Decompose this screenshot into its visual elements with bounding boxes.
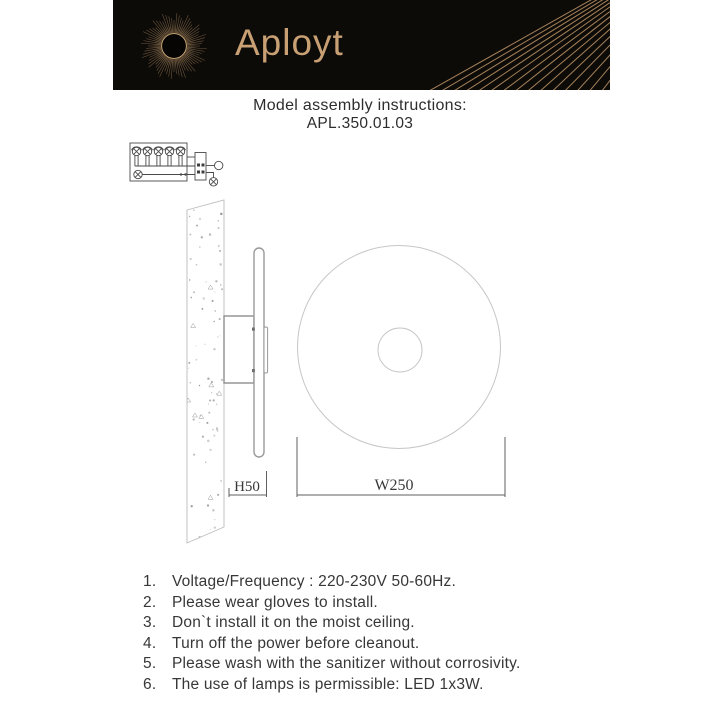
instruction-item: 3. Don`t install it on the moist ceiling… [143, 614, 520, 635]
item-number: 5. [143, 655, 172, 673]
item-text: Voltage/Frequency : 220-230V 50-60Hz. [172, 573, 456, 591]
lamp-symbol [134, 170, 142, 178]
item-number: 3. [143, 614, 172, 632]
item-number: 2. [143, 594, 172, 612]
front-view [298, 246, 501, 449]
item-number: 1. [143, 573, 172, 591]
connector-piece [264, 327, 268, 373]
document-title: Model assembly instructions: APL.350.01.… [0, 96, 720, 133]
item-number: 6. [143, 676, 172, 694]
wiring-diagram [130, 143, 223, 186]
title-line: Model assembly instructions: [0, 96, 720, 115]
instruction-list: 1. Voltage/Frequency : 220-230V 50-60Hz.… [143, 573, 520, 697]
instruction-item: 4. Turn off the power before cleanout. [143, 635, 520, 656]
mounting-box [224, 316, 254, 383]
instruction-item: 6. The use of lamps is permissible: LED … [143, 676, 520, 697]
dimension-height-label: H50 [234, 479, 260, 495]
brand-banner: Aployt [113, 0, 610, 90]
instruction-item: 5. Please wash with the sanitizer withou… [143, 655, 520, 676]
dimension-lines [229, 437, 505, 497]
lamp-center-circle [378, 328, 422, 372]
item-text: The use of lamps is permissible: LED 1x3… [172, 676, 484, 694]
ceiling-panel [187, 200, 224, 543]
instruction-item: 1. Voltage/Frequency : 220-230V 50-60Hz. [143, 573, 520, 594]
item-number: 4. [143, 635, 172, 653]
model-number: APL.350.01.03 [0, 115, 720, 133]
item-text: Please wash with the sanitizer without c… [172, 655, 520, 673]
item-text: Turn off the power before cleanout. [172, 635, 419, 653]
item-text: Don`t install it on the moist ceiling. [172, 614, 415, 632]
brand-name: Aployt [235, 21, 344, 65]
lamp-disc-outline [298, 246, 501, 449]
lamp-profile [254, 248, 264, 457]
starburst-logo-icon [132, 4, 216, 88]
instruction-sheet: H50 W250 Aployt Model assembly instructi… [0, 0, 720, 720]
instruction-item: 2. Please wear gloves to install. [143, 594, 520, 615]
dimension-width-label: W250 [374, 477, 413, 494]
item-text: Please wear gloves to install. [172, 594, 378, 612]
